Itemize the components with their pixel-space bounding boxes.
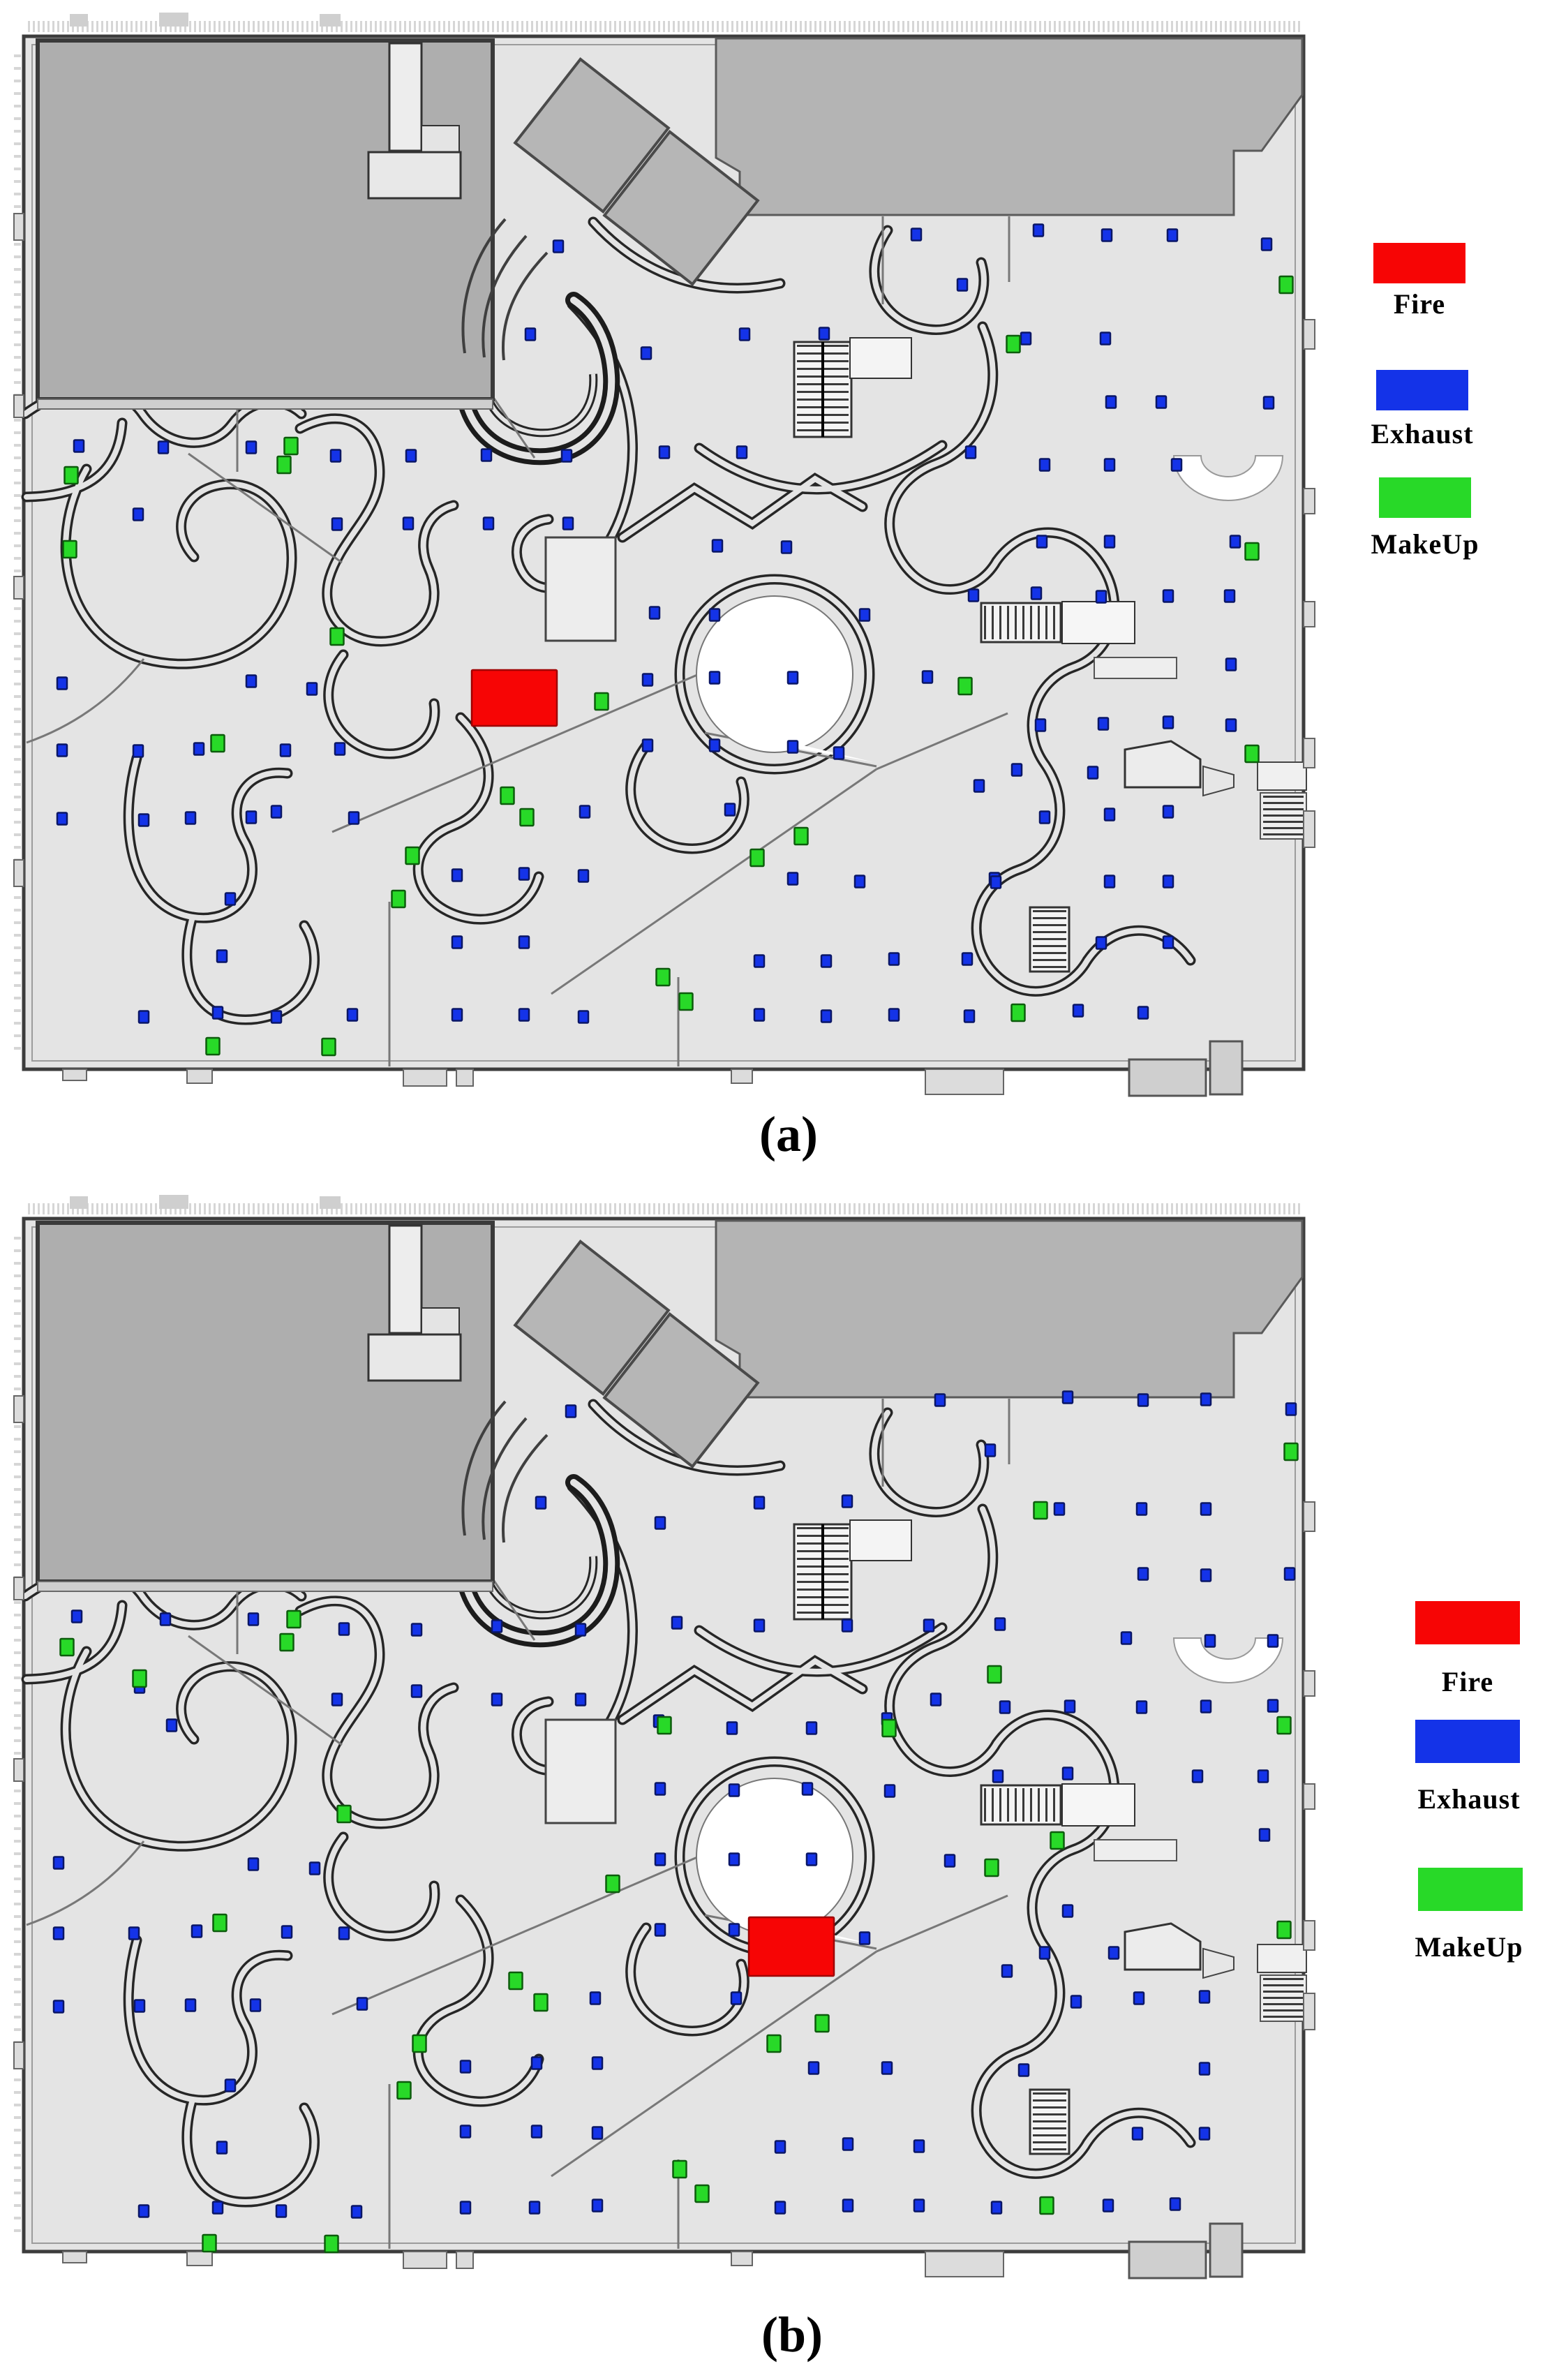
makeup-marker: [288, 1611, 301, 1628]
fire-zone: [749, 1917, 834, 1976]
exhaust-marker: [1170, 2199, 1180, 2210]
exhaust-marker: [1200, 2063, 1209, 2075]
exhaust-marker: [1260, 1829, 1269, 1841]
exhaust-marker: [1106, 396, 1116, 408]
exhaust-marker: [482, 449, 491, 461]
exhaust-marker: [1071, 1996, 1081, 2008]
fire-label: Fire: [1315, 288, 1524, 320]
makeup-marker: [64, 541, 77, 558]
exhaust-marker: [655, 1517, 665, 1529]
exhaust-marker: [710, 672, 719, 684]
exhaust-marker: [590, 1993, 600, 2005]
exhaust-marker: [650, 607, 659, 619]
exhaust-marker: [1230, 536, 1240, 548]
exhaust-marker: [882, 2062, 892, 2074]
exhaust-marker: [1063, 1905, 1073, 1917]
exhaust-marker: [576, 1624, 585, 1636]
exhaust-marker: [788, 741, 798, 753]
exhaust-marker: [307, 683, 317, 695]
makeup-marker: [203, 2235, 216, 2252]
exhaust-marker: [710, 740, 719, 752]
exhaust-marker: [566, 1406, 576, 1418]
makeup-marker: [985, 1859, 999, 1876]
exhaust-marker: [1138, 1568, 1148, 1580]
exhaust-marker: [1109, 1947, 1119, 1959]
exhaust-marker: [525, 329, 535, 341]
exhaust-marker: [995, 1619, 1005, 1630]
exhaust-marker: [452, 937, 462, 949]
exhaust-marker: [271, 1011, 281, 1023]
exhaust-marker: [775, 2202, 785, 2214]
exhaust-marker: [993, 1771, 1003, 1783]
exhaust-marker: [492, 1694, 502, 1706]
exhaust-marker: [192, 1926, 202, 1938]
exhaust-marker: [133, 745, 143, 757]
makeup-marker: [1278, 1921, 1291, 1938]
exhaust-marker: [885, 1785, 895, 1797]
exhaust-marker: [1163, 876, 1173, 888]
exhaust-marker: [592, 2200, 602, 2212]
exhaust-marker: [246, 812, 256, 824]
exhaust-marker: [1105, 809, 1114, 821]
exhaust-marker: [519, 937, 529, 949]
exhaust-marker: [914, 2141, 924, 2152]
exhaust-marker: [1258, 1771, 1268, 1783]
exhaust-marker: [580, 806, 590, 818]
exhaust-marker: [217, 2142, 227, 2154]
floor-plan-a: [14, 6, 1312, 1087]
exhaust-marker: [819, 328, 829, 340]
exhaust-marker: [889, 953, 899, 965]
exhaust-marker: [248, 1614, 258, 1626]
exhaust-marker: [1036, 720, 1045, 731]
panel-b-caption: (b): [0, 2306, 1559, 2364]
makeup-marker: [883, 1720, 896, 1736]
exhaust-marker: [1137, 1702, 1147, 1713]
makeup-marker: [398, 2082, 411, 2099]
exhaust-marker: [974, 780, 984, 792]
exhaust-marker: [331, 450, 341, 462]
exhaust-marker: [1226, 720, 1236, 731]
exhaust-marker: [807, 1854, 816, 1866]
exhaust-marker: [492, 1621, 502, 1632]
exhaust-marker: [931, 1694, 941, 1706]
exhaust-marker: [357, 1998, 367, 2010]
exhaust-marker: [553, 241, 563, 253]
exhaust-marker: [217, 951, 227, 962]
exhaust-marker: [579, 870, 588, 882]
makeup-marker: [133, 1670, 147, 1687]
panel-a-caption: (a): [0, 1106, 1559, 1163]
exhaust-marker: [641, 348, 651, 359]
exhaust-marker: [352, 2206, 361, 2218]
exhaust-marker: [461, 2202, 470, 2214]
exhaust-marker: [452, 1009, 462, 1021]
exhaust-marker: [655, 1854, 665, 1866]
exhaust-marker: [248, 1859, 258, 1870]
exhaust-marker: [1034, 225, 1043, 237]
exhaust-marker: [186, 812, 195, 824]
exhaust-marker: [72, 1611, 82, 1623]
exhaust-marker: [843, 2139, 853, 2150]
exhaust-marker: [1054, 1503, 1064, 1515]
exhaust-marker: [969, 590, 978, 602]
exhaust-marker: [729, 1924, 739, 1936]
exhaust-marker: [1264, 397, 1274, 409]
makeup-marker: [392, 891, 405, 907]
exhaust-marker: [579, 1011, 588, 1023]
exhaust-marker: [310, 1863, 320, 1875]
exhaust-marker: [1134, 1993, 1144, 2005]
exhaust-marker: [1137, 1503, 1147, 1515]
exhaust-marker: [754, 1620, 764, 1632]
exhaust-marker: [643, 674, 652, 686]
makeup-marker: [211, 735, 225, 752]
makeup-marker: [521, 809, 534, 826]
exhaust-marker: [348, 1009, 357, 1021]
exhaust-marker: [935, 1394, 945, 1406]
exhaust-marker: [1063, 1392, 1073, 1404]
exhaust-marker: [246, 676, 256, 687]
exhaust-marker: [924, 1620, 934, 1632]
exhaust-marker: [1102, 230, 1112, 241]
exhaust-marker: [349, 812, 359, 824]
exhaust-marker: [1262, 239, 1271, 251]
exhaust-marker: [1163, 717, 1173, 729]
exhaust-swatch: [1376, 370, 1468, 410]
exhaust-swatch: [1415, 1720, 1520, 1763]
floor-plan-b: [14, 1188, 1312, 2270]
exhaust-marker: [1201, 1394, 1211, 1406]
exhaust-marker: [1063, 1768, 1073, 1780]
exhaust-marker: [332, 1694, 342, 1706]
exhaust-marker: [1105, 536, 1114, 548]
exhaust-marker: [1121, 1632, 1131, 1644]
makeup-marker: [606, 1875, 620, 1892]
exhaust-marker: [1156, 396, 1166, 408]
exhaust-marker: [532, 2126, 542, 2138]
exhaust-marker: [339, 1623, 349, 1635]
exhaust-marker: [74, 440, 84, 452]
makeup-marker: [696, 2185, 709, 2202]
exhaust-marker: [729, 1785, 739, 1797]
exhaust-marker: [809, 2062, 819, 2074]
exhaust-marker: [659, 447, 669, 459]
exhaust-marker: [713, 540, 722, 552]
makeup-label: MakeUp: [1364, 1931, 1559, 1963]
exhaust-marker: [957, 279, 967, 291]
exhaust-marker: [807, 1723, 816, 1734]
makeup-marker: [988, 1666, 1001, 1683]
exhaust-marker: [530, 2202, 539, 2214]
exhaust-marker: [1105, 876, 1114, 888]
exhaust-marker: [945, 1855, 955, 1867]
makeup-marker: [1285, 1443, 1298, 1460]
exhaust-marker: [576, 1694, 585, 1706]
exhaust-marker: [158, 442, 168, 454]
exhaust-marker: [923, 671, 932, 683]
exhaust-marker: [167, 1720, 177, 1732]
exhaust-marker: [281, 745, 290, 757]
makeup-marker: [285, 438, 298, 454]
makeup-marker: [1007, 336, 1020, 352]
exhaust-marker: [54, 1928, 64, 1940]
exhaust-marker: [139, 815, 149, 826]
exhaust-marker: [962, 953, 972, 965]
exhaust-marker: [1285, 1568, 1295, 1580]
exhaust-marker: [1268, 1635, 1278, 1647]
exhaust-marker: [536, 1497, 546, 1509]
exhaust-marker: [225, 893, 235, 905]
exhaust-marker: [731, 1993, 741, 2005]
exhaust-marker: [1101, 333, 1110, 345]
exhaust-marker: [860, 609, 870, 621]
exhaust-marker: [54, 1857, 64, 1869]
exhaust-marker: [139, 2206, 149, 2217]
exhaust-marker: [1040, 459, 1050, 471]
exhaust-marker: [803, 1783, 812, 1795]
makeup-marker: [331, 628, 344, 645]
makeup-marker: [509, 1972, 523, 1989]
exhaust-marker: [655, 1783, 665, 1795]
exhaust-marker: [271, 806, 281, 818]
exhaust-marker: [135, 2000, 144, 2012]
exhaust-marker: [1040, 812, 1050, 824]
makeup-marker: [338, 1806, 351, 1822]
exhaust-marker: [282, 1926, 292, 1938]
exhaust-marker: [1000, 1702, 1010, 1713]
makeup-marker: [816, 2015, 829, 2032]
exhaust-marker: [788, 672, 798, 684]
exhaust-marker: [225, 2080, 235, 2092]
exhaust-marker: [339, 1928, 349, 1940]
makeup-marker: [501, 787, 514, 804]
exhaust-marker: [643, 740, 652, 752]
exhaust-marker: [461, 2061, 470, 2073]
exhaust-marker: [740, 329, 749, 341]
fire-label: Fire: [1363, 1665, 1559, 1698]
exhaust-marker: [562, 450, 572, 462]
exhaust-marker: [727, 1723, 737, 1734]
exhaust-marker: [1096, 591, 1106, 603]
exhaust-marker: [725, 804, 735, 816]
makeup-marker: [535, 1994, 548, 2011]
exhaust-marker: [1065, 1701, 1075, 1713]
exhaust-marker: [1172, 459, 1181, 471]
exhaust-marker: [1002, 1965, 1012, 1977]
makeup-marker: [959, 678, 972, 694]
exhaust-marker: [484, 518, 493, 530]
exhaust-marker: [519, 868, 529, 880]
exhaust-marker: [737, 447, 747, 459]
exhaust-marker: [710, 609, 719, 621]
exhaust-marker: [213, 1007, 223, 1019]
exhaust-marker: [1205, 1635, 1215, 1647]
exhaust-marker: [403, 518, 413, 530]
makeup-marker: [1040, 2197, 1054, 2214]
exhaust-marker: [1138, 1007, 1148, 1019]
exhaust-marker: [213, 2202, 223, 2214]
exhaust-marker: [186, 2000, 195, 2011]
exhaust-marker: [1138, 1394, 1148, 1406]
exhaust-marker: [592, 2058, 602, 2069]
exhaust-marker: [1012, 764, 1022, 776]
exhaust-marker: [1200, 1991, 1209, 2003]
exhaust-marker: [133, 509, 143, 521]
exhaust-marker: [57, 678, 67, 690]
exhaust-marker: [889, 1009, 899, 1021]
makeup-marker: [658, 1717, 671, 1734]
makeup-label: MakeUp: [1320, 528, 1530, 560]
exhaust-marker: [1037, 536, 1047, 548]
exhaust-marker: [855, 876, 865, 888]
exhaust-marker: [754, 955, 764, 967]
exhaust-marker: [992, 2202, 1001, 2214]
exhaust-marker: [1073, 1005, 1083, 1017]
exhaust-marker: [412, 1624, 422, 1636]
exhaust-marker: [655, 1924, 665, 1936]
exhaust-marker: [1031, 588, 1041, 600]
makeup-marker: [413, 2035, 426, 2052]
makeup-marker: [595, 693, 609, 710]
exhaust-marker: [821, 955, 831, 967]
exhaust-marker: [406, 450, 416, 462]
makeup-marker: [1012, 1004, 1025, 1021]
makeup-marker: [322, 1039, 336, 1055]
makeup-marker: [61, 1639, 74, 1656]
fire-swatch: [1373, 243, 1465, 283]
exhaust-label: Exhaust: [1318, 417, 1527, 450]
exhaust-marker: [1163, 937, 1173, 949]
makeup-marker: [278, 456, 291, 473]
makeup-marker: [1034, 1502, 1047, 1519]
fire-swatch: [1415, 1601, 1520, 1644]
exhaust-marker: [519, 1009, 529, 1021]
exhaust-marker: [57, 813, 67, 825]
makeup-marker: [406, 847, 419, 864]
exhaust-marker: [914, 2200, 924, 2212]
exhaust-marker: [842, 1620, 852, 1632]
exhaust-marker: [966, 447, 976, 459]
makeup-marker: [680, 993, 693, 1010]
exhaust-marker: [1168, 230, 1177, 241]
exhaust-marker: [161, 1614, 170, 1626]
exhaust-marker: [1133, 2128, 1142, 2140]
exhaust-marker: [1286, 1404, 1296, 1415]
exhaust-marker: [194, 743, 204, 755]
exhaust-marker: [276, 2206, 286, 2217]
exhaust-marker: [821, 1011, 831, 1022]
exhaust-marker: [461, 2126, 470, 2138]
makeup-marker: [1246, 745, 1259, 762]
exhaust-marker: [843, 2200, 853, 2212]
exhaust-marker: [532, 2058, 542, 2069]
exhaust-marker: [1019, 2065, 1029, 2076]
exhaust-marker: [860, 1933, 870, 1944]
exhaust-marker: [1021, 333, 1031, 345]
exhaust-marker: [842, 1496, 852, 1508]
exhaust-marker: [452, 870, 462, 882]
exhaust-marker: [985, 1445, 995, 1457]
exhaust-marker: [139, 1011, 149, 1023]
exhaust-marker: [1098, 718, 1108, 730]
makeup-marker: [1051, 1832, 1064, 1849]
exhaust-marker: [964, 1011, 974, 1022]
exhaust-marker: [1040, 1947, 1050, 1959]
exhaust-marker: [834, 748, 844, 759]
makeup-swatch: [1379, 477, 1471, 518]
exhaust-marker: [1105, 459, 1114, 471]
exhaust-marker: [1225, 590, 1234, 602]
exhaust-marker: [412, 1686, 422, 1697]
makeup-marker: [795, 828, 808, 845]
exhaust-marker: [1226, 659, 1236, 671]
exhaust-marker: [57, 745, 67, 757]
exhaust-marker: [54, 2001, 64, 2013]
exhaust-marker: [672, 1617, 682, 1629]
exhaust-marker: [246, 442, 256, 454]
exhaust-marker: [782, 542, 791, 553]
exhaust-marker: [1268, 1700, 1278, 1712]
makeup-marker: [325, 2236, 338, 2252]
exhaust-marker: [754, 1009, 764, 1021]
makeup-marker: [1280, 276, 1293, 293]
makeup-marker: [751, 849, 764, 866]
makeup-marker: [1246, 543, 1259, 560]
exhaust-marker: [563, 518, 573, 530]
exhaust-marker: [775, 2141, 785, 2153]
exhaust-marker: [1201, 1701, 1211, 1713]
makeup-swatch: [1418, 1868, 1523, 1911]
makeup-marker: [1278, 1717, 1291, 1734]
exhaust-marker: [251, 2000, 260, 2011]
makeup-marker: [768, 2035, 781, 2052]
exhaust-marker: [754, 1497, 764, 1509]
exhaust-marker: [1193, 1771, 1202, 1783]
makeup-marker: [207, 1038, 220, 1055]
fire-zone: [472, 670, 557, 726]
exhaust-marker: [1088, 767, 1098, 779]
makeup-marker: [214, 1914, 227, 1931]
exhaust-marker: [332, 519, 342, 530]
makeup-marker: [281, 1634, 294, 1651]
makeup-marker: [657, 969, 670, 986]
exhaust-marker: [991, 877, 1001, 888]
exhaust-marker: [129, 1928, 139, 1940]
exhaust-marker: [1163, 590, 1173, 602]
exhaust-marker: [1201, 1503, 1211, 1515]
exhaust-marker: [788, 873, 798, 885]
makeup-marker: [673, 2161, 687, 2178]
exhaust-marker: [1201, 1570, 1211, 1582]
exhaust-marker: [911, 229, 921, 241]
exhaust-marker: [1103, 2200, 1113, 2212]
exhaust-marker: [335, 743, 345, 755]
makeup-marker: [65, 467, 78, 484]
exhaust-marker: [1200, 2128, 1209, 2140]
exhaust-marker: [592, 2127, 602, 2139]
exhaust-label: Exhaust: [1364, 1783, 1559, 1815]
exhaust-marker: [1096, 937, 1106, 949]
exhaust-marker: [729, 1854, 739, 1866]
exhaust-marker: [1163, 806, 1173, 818]
